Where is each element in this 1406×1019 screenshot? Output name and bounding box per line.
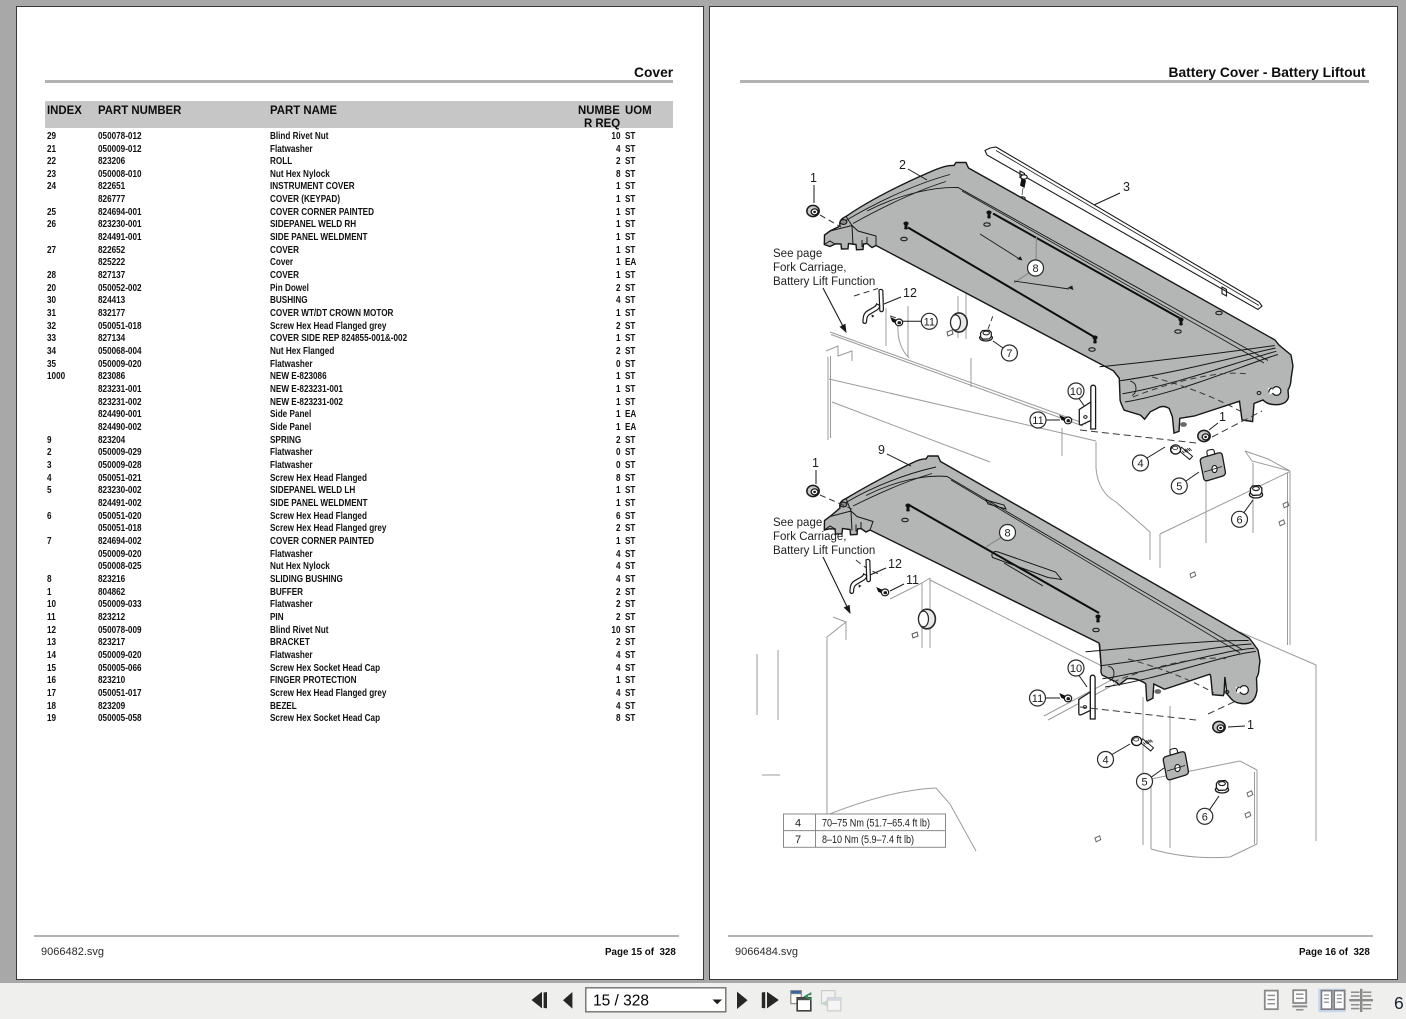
- svg-text:11: 11: [1032, 693, 1043, 705]
- svg-text:70–75 Nm (51.7–65.4 ft lb): 70–75 Nm (51.7–65.4 ft lb): [822, 818, 930, 830]
- svg-text:12: 12: [888, 557, 902, 571]
- svg-text:4: 4: [795, 818, 801, 830]
- svg-text:1: 1: [812, 456, 819, 470]
- svg-text:11: 11: [924, 317, 935, 329]
- svg-text:11: 11: [906, 573, 919, 587]
- svg-text:1: 1: [1247, 718, 1254, 732]
- svg-text:10: 10: [1070, 663, 1082, 675]
- svg-text:3: 3: [1123, 180, 1130, 194]
- svg-text:8: 8: [1004, 528, 1010, 540]
- svg-text:5: 5: [1176, 481, 1182, 493]
- svg-text:8–10 Nm (5.9–7.4 ft lb): 8–10 Nm (5.9–7.4 ft lb): [822, 834, 914, 846]
- svg-text:6: 6: [1236, 515, 1242, 527]
- svg-text:7: 7: [795, 834, 801, 846]
- svg-text:8: 8: [1032, 263, 1038, 275]
- svg-text:10: 10: [1070, 386, 1082, 398]
- svg-text:15 / 328: 15 / 328: [593, 993, 649, 1010]
- svg-text:4: 4: [1102, 755, 1108, 767]
- svg-text:Battery Lift Function: Battery Lift Function: [773, 276, 875, 288]
- svg-text:6: 6: [1394, 993, 1404, 1013]
- svg-text:See page: See page: [773, 248, 822, 260]
- svg-text:6: 6: [1202, 812, 1208, 824]
- svg-text:9: 9: [878, 443, 885, 457]
- svg-text:Battery Lift Function: Battery Lift Function: [773, 545, 875, 557]
- svg-text:12: 12: [903, 286, 917, 300]
- svg-text:1: 1: [1219, 410, 1226, 424]
- svg-text:7: 7: [1006, 348, 1012, 360]
- svg-text:4: 4: [1137, 458, 1143, 470]
- svg-text:Fork Carriage,: Fork Carriage,: [773, 531, 847, 543]
- svg-text:Fork Carriage,: Fork Carriage,: [773, 262, 847, 274]
- svg-text:1: 1: [810, 171, 817, 185]
- svg-text:2: 2: [899, 158, 906, 172]
- svg-text:5: 5: [1141, 777, 1147, 789]
- svg-text:11: 11: [1032, 415, 1043, 427]
- svg-text:See page: See page: [773, 517, 822, 529]
